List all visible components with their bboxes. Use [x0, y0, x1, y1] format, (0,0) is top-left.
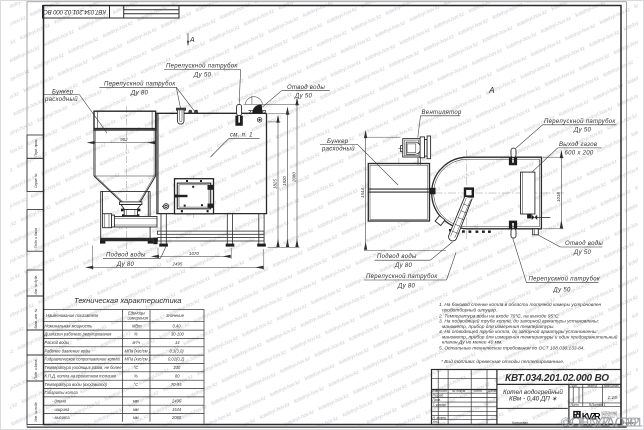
svg-text:Техническая характеристика: Техническая характеристика — [74, 296, 182, 305]
svg-text:Ду 50: Ду 50 — [573, 128, 591, 134]
svg-text:Ду 80: Ду 80 — [116, 262, 134, 268]
svg-text:манометр, прибор для измерени: манометр, прибор для измерения температу… — [442, 324, 555, 330]
svg-text:КВм - 0,40 ДП ∗: КВм - 0,40 ДП ∗ — [509, 395, 558, 402]
svg-text:Ду 80: Ду 80 — [394, 263, 412, 269]
svg-text:Значение: Значение — [166, 313, 185, 318]
svg-text:Подвод воды: Подвод воды — [377, 254, 417, 260]
svg-text:Т. контр.: Т. контр. — [433, 403, 447, 407]
svg-text:МПа (кгс/см ): МПа (кгс/см ) — [125, 348, 151, 353]
svg-text:мм: мм — [133, 407, 139, 412]
svg-text:Бункер: Бункер — [327, 139, 349, 145]
svg-text:1544: 1544 — [360, 188, 365, 198]
svg-text:Масса: Масса — [588, 384, 598, 388]
svg-text:1825: 1825 — [273, 179, 278, 189]
svg-text:°С: °С — [134, 365, 139, 370]
svg-text:2495: 2495 — [171, 399, 182, 404]
svg-text:Наименование показателя: Наименование показателя — [46, 313, 99, 318]
svg-text:м³/ч: м³/ч — [133, 340, 141, 345]
svg-text:Подп. и дата: Подп. и дата — [34, 228, 38, 248]
svg-text:Ду 50: Ду 50 — [294, 94, 312, 100]
svg-text:А: А — [488, 85, 495, 95]
svg-text:Лит.: Лит. — [570, 384, 579, 388]
svg-text:манометр, прибор для измерени: манометр, прибор для измерения температу… — [442, 333, 618, 340]
svg-text:мм: мм — [133, 415, 139, 420]
svg-text:1:15: 1:15 — [608, 395, 618, 401]
svg-text:1. На боковой стенке котла в: 1. На боковой стенке котла в области топ… — [439, 301, 602, 308]
svg-text:расходный: расходный — [44, 96, 78, 103]
svg-text:Диапазон рабочего регулировани: Диапазон рабочего регулирования — [44, 332, 113, 337]
svg-text:Дата: Дата — [487, 389, 497, 393]
svg-text:Отвод воды: Отвод воды — [287, 85, 325, 91]
svg-text:расходный: расходный — [321, 145, 355, 152]
svg-text:Листов 1: Листов 1 — [590, 403, 605, 407]
svg-text:0,3(3,0): 0,3(3,0) — [170, 348, 185, 353]
svg-text:Температура уходящих газов, не: Температура уходящих газов, не более — [45, 365, 123, 370]
svg-text:1544: 1544 — [172, 407, 182, 412]
svg-text:Перепускной патрубок: Перепускной патрубок — [544, 118, 616, 125]
svg-text:КВТ.034.201.02.000 ВО: КВТ.034.201.02.000 ВО — [43, 8, 106, 15]
svg-text:Гидравлическое сопротивление к: Гидравлическое сопротивление котла — [45, 357, 121, 362]
svg-text:Ду 80: Ду 80 — [130, 90, 148, 96]
svg-text:№ докум.: № докум. — [452, 389, 466, 393]
svg-text:Ду 50: Ду 50 — [573, 250, 591, 256]
svg-text:Инв. № подл.: Инв. № подл. — [34, 402, 38, 422]
svg-text:см. п. 1: см. п. 1 — [230, 133, 253, 139]
svg-text:4. На отводящей трубе котла,: 4. На отводящей трубе котла, до запорной… — [439, 328, 598, 335]
svg-text:Рабочее давление воды: Рабочее давление воды — [45, 348, 91, 353]
svg-text:Изм: Изм — [432, 389, 439, 393]
svg-text:2080: 2080 — [292, 172, 297, 183]
svg-text:902: 902 — [120, 137, 128, 142]
svg-text:Ду 50: Ду 50 — [553, 288, 571, 294]
svg-text:Отвод воды: Отвод воды — [565, 241, 603, 247]
svg-text:2. Температура воды на вхо: 2. Температура воды на входе 70°С, на вы… — [438, 314, 560, 320]
svg-text:©KOTELNYJ-ZAVOD2021: ©KOTELNYJ-ZAVOD2021 — [561, 416, 643, 430]
svg-text:0,40: 0,40 — [173, 323, 182, 328]
svg-text:КВТ.034.201.02.000 ВО: КВТ.034.201.02.000 ВО — [505, 373, 609, 384]
svg-text:Перепускной патрубок: Перепускной патрубок — [166, 63, 238, 70]
svg-text:Справ. №: Справ. № — [34, 173, 38, 188]
svg-text:70-95: 70-95 — [171, 382, 182, 387]
svg-text:14: 14 — [175, 340, 180, 345]
svg-text:- длина: - длина — [52, 399, 67, 404]
svg-text:80: 80 — [175, 373, 180, 378]
svg-text:Перепускной патрубок: Перепускной патрубок — [529, 276, 601, 283]
svg-text:3. На подводящей трубе котла,: 3. На подводящей трубе котла, до запорно… — [439, 318, 600, 325]
svg-text:Ду 80: Ду 80 — [397, 284, 415, 290]
svg-text:°С: °С — [134, 382, 139, 387]
svg-text:Перв. прим.: Перв. прим. — [34, 139, 38, 157]
svg-text:Температура воды (вход/выход): Температура воды (вход/выход) — [45, 382, 108, 387]
svg-text:Подп.: Подп. — [474, 389, 483, 393]
svg-text:Пров.: Пров. — [433, 398, 442, 402]
svg-text:измерения: измерения — [128, 316, 149, 321]
svg-text:* Вид топлива: древесные о: * Вид топлива: древесные отходы пеллетир… — [441, 359, 564, 365]
svg-text:Вентилятор: Вентилятор — [422, 110, 463, 116]
svg-text:Расход воды: Расход воды — [45, 340, 69, 345]
svg-text:МВт: МВт — [132, 323, 142, 328]
svg-text:МПа (кгс/см ): МПа (кгс/см ) — [125, 357, 151, 362]
svg-text:- высота: - высота — [52, 415, 70, 420]
svg-text:230: 230 — [173, 365, 182, 370]
svg-text:Ду 50: Ду 50 — [193, 73, 211, 79]
svg-text:5. Остальные технические треб: 5. Остальные технические требования по О… — [439, 345, 585, 351]
svg-text:К.П.Д. котла на проектном топл: К.П.Д. котла на проектном топливе — [45, 373, 117, 378]
svg-text:Копировал: Копировал — [512, 421, 528, 425]
svg-text:Инв. № дубл.: Инв. № дубл. — [34, 275, 38, 295]
svg-text:Перепускной патрубок: Перепускной патрубок — [104, 81, 176, 88]
svg-text:1018: 1018 — [556, 192, 561, 202]
svg-text:- ширина: - ширина — [52, 407, 70, 412]
svg-text:клапан Ду не менее 40 мм.: клапан Ду не менее 40 мм. — [442, 340, 503, 346]
svg-text:Взам. инв. №: Взам. инв. № — [34, 308, 38, 328]
svg-text:мм: мм — [133, 399, 139, 404]
svg-text:Подп. и дата: Подп. и дата — [34, 359, 38, 379]
svg-text:Номинальная мощность: Номинальная мощность — [45, 323, 93, 328]
svg-text:Подвод воды: Подвод воды — [106, 252, 146, 258]
svg-text:Масштаб: Масштаб — [604, 384, 619, 388]
svg-text:А: А — [189, 35, 195, 44]
svg-text:Габариты котла: Габариты котла — [45, 390, 79, 395]
svg-text:Перепускной патрубок: Перепускной патрубок — [366, 273, 438, 280]
svg-text:%: % — [134, 373, 138, 378]
svg-text:2495: 2495 — [172, 262, 183, 267]
svg-text:Утв.: Утв. — [433, 420, 440, 424]
svg-text:2080: 2080 — [171, 415, 182, 420]
svg-text:Лист: Лист — [570, 403, 580, 407]
svg-text:30-100: 30-100 — [171, 332, 184, 337]
svg-text:Выход газов: Выход газов — [559, 142, 597, 148]
svg-text:0,02(0,2): 0,02(0,2) — [168, 357, 185, 362]
svg-text:1920: 1920 — [282, 176, 287, 186]
svg-text:1070: 1070 — [189, 251, 199, 256]
svg-text:600 х 200: 600 х 200 — [565, 151, 594, 157]
svg-text:проботборный штуцер.: проботборный штуцер. — [442, 306, 497, 313]
svg-text:%: % — [134, 332, 138, 337]
svg-text:Разраб.: Разраб. — [433, 394, 445, 398]
svg-text:Лист: Лист — [438, 389, 448, 393]
